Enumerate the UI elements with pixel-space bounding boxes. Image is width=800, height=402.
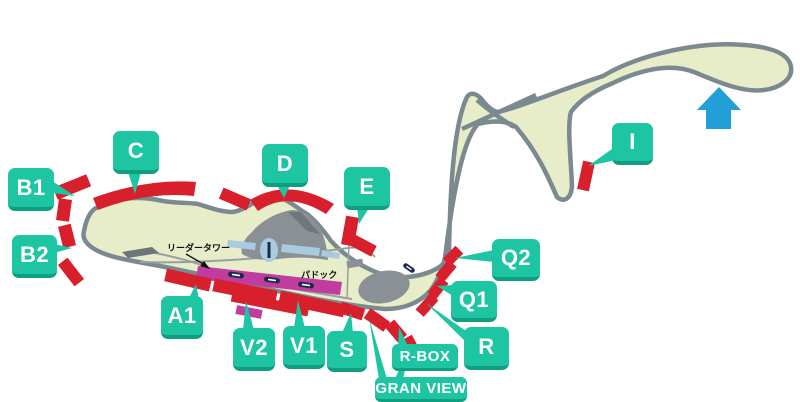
circuit-seating-map: リーダータワー パドック bbox=[0, 0, 800, 402]
stand-label-granview[interactable]: GRAN VIEW bbox=[375, 377, 467, 402]
track-outline bbox=[84, 44, 792, 309]
stand-label-d-text: D bbox=[277, 151, 293, 177]
stand-label-b1-text: B1 bbox=[16, 175, 45, 201]
north-arrow-icon bbox=[697, 87, 741, 129]
stand-c-seg2[interactable] bbox=[219, 188, 251, 211]
stand-label-i-text: I bbox=[629, 129, 636, 155]
facility-tower-mark bbox=[268, 242, 271, 258]
stand-label-v2-text: V2 bbox=[240, 335, 268, 361]
stand-label-a1[interactable]: A1 bbox=[161, 296, 203, 339]
stand-label-v1-text: V1 bbox=[290, 333, 318, 359]
stand-label-rbox[interactable]: R-BOX bbox=[392, 344, 458, 371]
stand-label-v2[interactable]: V2 bbox=[233, 328, 275, 371]
pointer-e bbox=[357, 208, 369, 224]
leader-tower-label: リーダータワー bbox=[167, 242, 230, 253]
circuit-map-canvas: リーダータワー パドック bbox=[0, 0, 800, 402]
stand-i[interactable] bbox=[577, 161, 595, 192]
stand-label-granview-text: GRAN VIEW bbox=[375, 380, 466, 397]
stand-label-e[interactable]: E bbox=[344, 167, 390, 210]
stand-label-e-text: E bbox=[359, 174, 374, 200]
stand-b1-seg2[interactable] bbox=[56, 198, 72, 222]
stand-b2-seg1[interactable] bbox=[58, 224, 76, 248]
stand-label-a1-text: A1 bbox=[167, 303, 196, 329]
stand-label-s[interactable]: S bbox=[327, 331, 367, 372]
stand-label-b2[interactable]: B2 bbox=[12, 235, 57, 278]
stand-label-d[interactable]: D bbox=[262, 144, 308, 187]
stand-label-q1-text: Q1 bbox=[459, 287, 489, 313]
stand-label-v1[interactable]: V1 bbox=[283, 326, 325, 369]
stand-label-r-text: R bbox=[478, 334, 494, 360]
stand-label-r[interactable]: R bbox=[464, 327, 509, 370]
stand-label-b1[interactable]: B1 bbox=[8, 168, 54, 211]
track-gate-marker bbox=[402, 262, 416, 274]
stand-label-c[interactable]: C bbox=[113, 131, 159, 174]
paddock-label: パドック bbox=[301, 269, 337, 280]
stand-label-c-text: C bbox=[128, 138, 144, 164]
stand-label-q2-text: Q2 bbox=[501, 245, 531, 271]
stand-label-rbox-text: R-BOX bbox=[400, 348, 451, 365]
stand-label-b2-text: B2 bbox=[20, 242, 49, 268]
stand-label-q2[interactable]: Q2 bbox=[492, 239, 540, 281]
stand-e-seg2[interactable] bbox=[347, 233, 376, 256]
stand-label-i[interactable]: I bbox=[612, 123, 653, 165]
stand-label-q1[interactable]: Q1 bbox=[451, 281, 497, 322]
stand-b2-seg2[interactable] bbox=[58, 258, 84, 287]
stand-label-s-text: S bbox=[339, 337, 354, 363]
